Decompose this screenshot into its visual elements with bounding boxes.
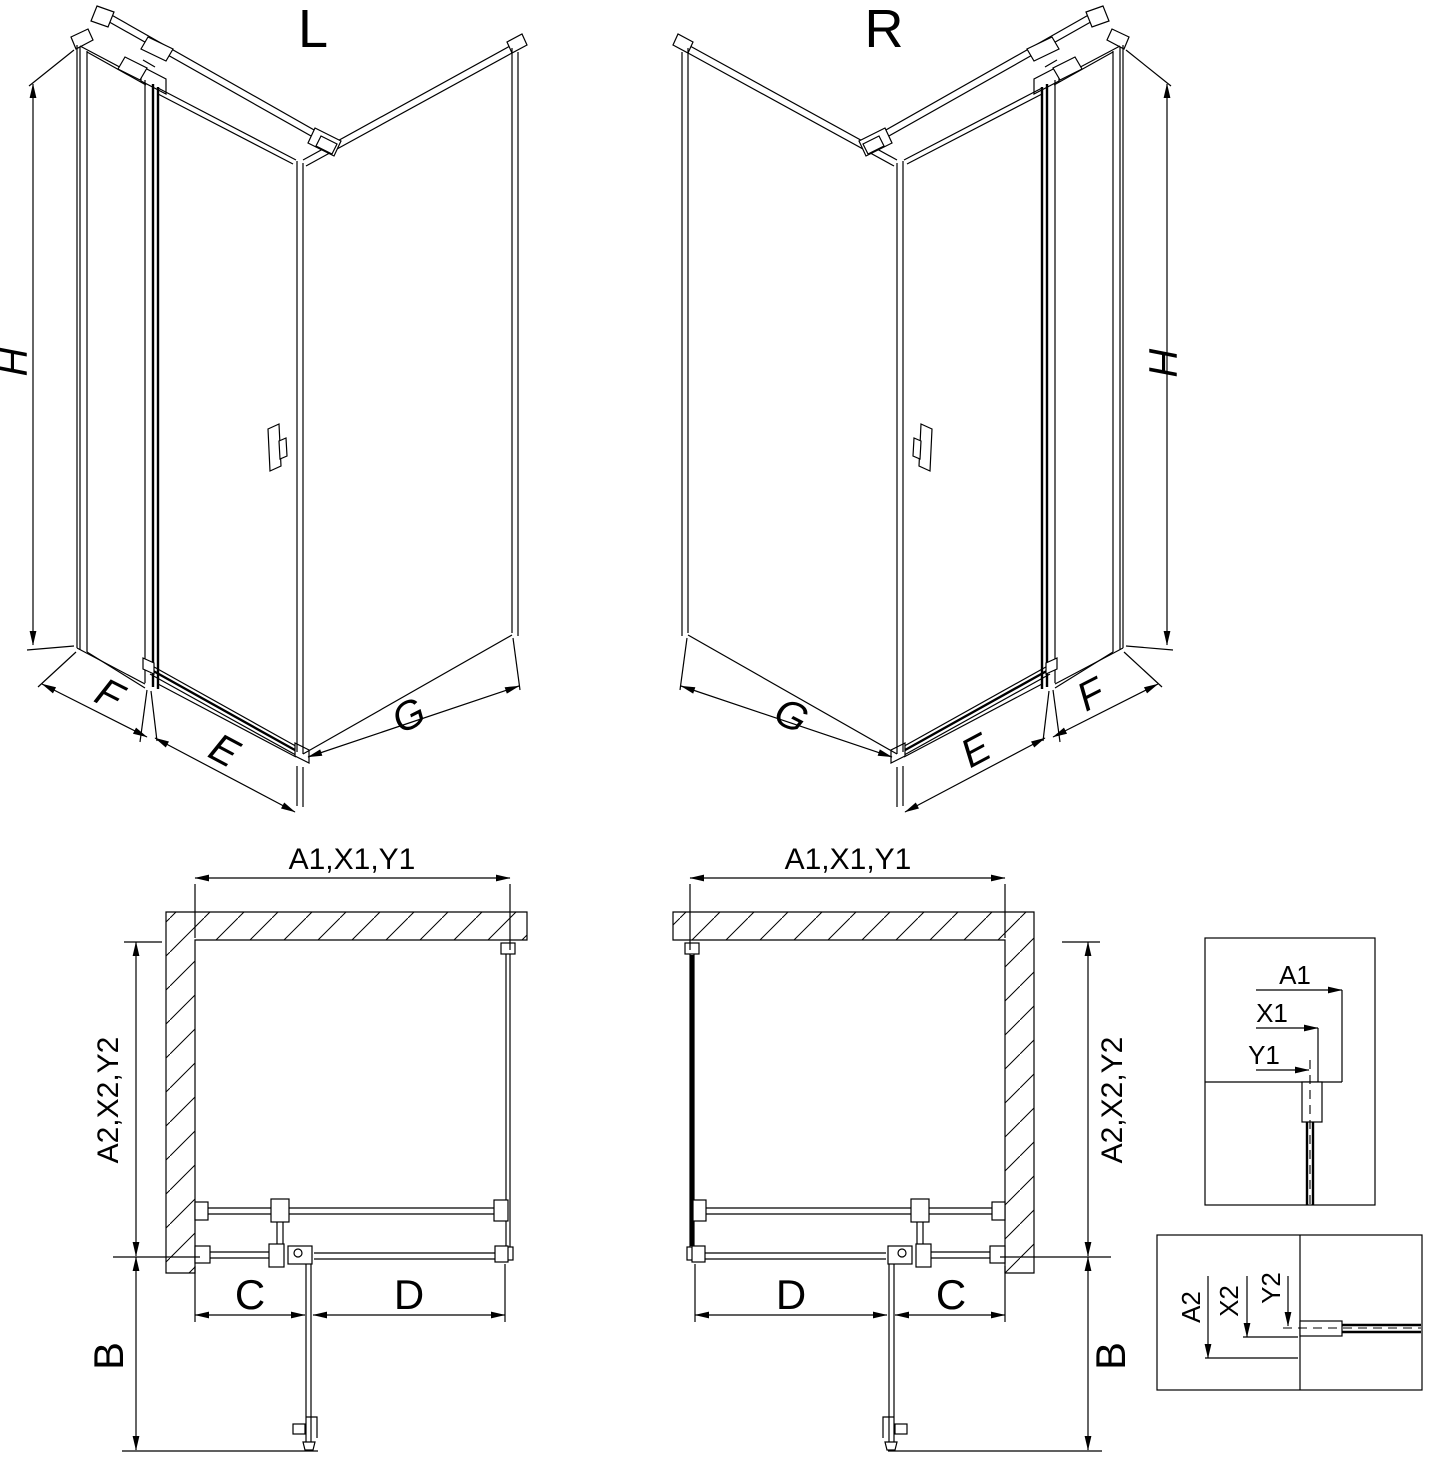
detail-inset-width-reference: A1 X1 Y1 xyxy=(1205,938,1375,1205)
drawing-canvas: L H F E G R H F E G A1,X1,Y1 A2,X2,Y2 B … xyxy=(0,0,1430,1460)
detail-a2-label: A2 xyxy=(1176,1291,1206,1323)
view-title-right: R xyxy=(865,0,904,59)
plan-width-label-left: A1,X1,Y1 xyxy=(289,843,416,876)
detail-y1-label: Y1 xyxy=(1248,1040,1280,1070)
plan-depth-label-left: A2,X2,Y2 xyxy=(92,1037,125,1164)
plan-view-right: A1,X1,Y1 A2,X2,Y2 B D C xyxy=(673,843,1134,1451)
detail-x1-label: X1 xyxy=(1256,998,1288,1028)
plan-door-segment-label-left: D xyxy=(394,1271,424,1318)
detail-a1-label: A1 xyxy=(1279,960,1311,990)
dim-label-door-left: E xyxy=(202,725,247,777)
wall-hatch-top-left-plan xyxy=(166,912,527,940)
wall-hatch-side-right-plan xyxy=(1005,940,1034,1273)
plan-door-segment-label-right: D xyxy=(776,1271,806,1318)
shower-enclosure-technical-drawing: L H F E G R H F E G A1,X1,Y1 A2,X2,Y2 B … xyxy=(0,0,1430,1460)
dim-label-return-panel-left: G xyxy=(385,689,433,742)
plan-fixed-segment-label-left: C xyxy=(235,1271,265,1318)
view-title-left: L xyxy=(298,0,328,59)
detail-x2-label: X2 xyxy=(1214,1285,1244,1317)
plan-fixed-segment-label-right: C xyxy=(936,1271,966,1318)
detail-inset-depth-reference: A2 X2 Y2 xyxy=(1157,1235,1422,1390)
dim-label-side-panel-left: F xyxy=(88,670,132,721)
dim-label-door-right: E xyxy=(954,725,999,777)
plan-view-left: A1,X1,Y1 A2,X2,Y2 B C D xyxy=(85,843,527,1451)
wall-hatch-top-right-plan xyxy=(673,912,1034,940)
plan-door-swing-label-left: B xyxy=(85,1342,132,1370)
plan-door-swing-label-right: B xyxy=(1087,1342,1134,1370)
plan-width-label-right: A1,X1,Y1 xyxy=(785,843,912,876)
dim-label-height-left: H xyxy=(0,347,36,376)
plan-depth-label-right: A2,X2,Y2 xyxy=(1096,1037,1129,1164)
3d-view-right: R H F E G xyxy=(673,0,1184,812)
wall-hatch-side-left-plan xyxy=(166,940,195,1273)
detail-y2-label: Y2 xyxy=(1256,1272,1286,1304)
dim-label-height-right: H xyxy=(1140,348,1184,377)
3d-view-left: L H F E G xyxy=(0,0,527,812)
dim-label-return-panel-right: G xyxy=(767,689,815,742)
dim-label-side-panel-right: F xyxy=(1070,669,1114,720)
